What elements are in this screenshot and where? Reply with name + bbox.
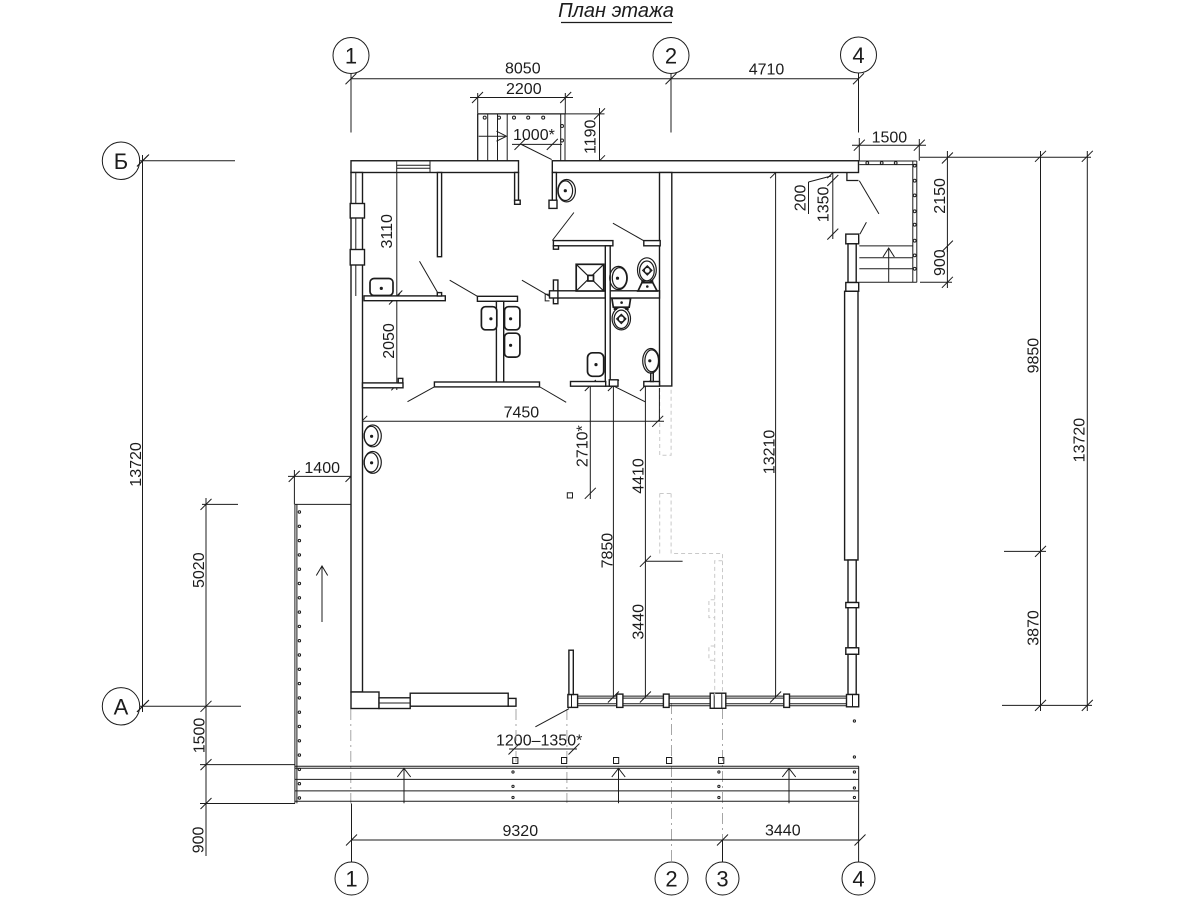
- svg-text:1190: 1190: [583, 119, 600, 154]
- svg-text:1200–1350*: 1200–1350*: [496, 733, 582, 750]
- svg-text:А: А: [114, 694, 129, 719]
- svg-text:900: 900: [191, 827, 208, 854]
- svg-text:4410: 4410: [631, 458, 648, 494]
- svg-text:13210: 13210: [762, 430, 779, 475]
- svg-text:7850: 7850: [600, 533, 617, 569]
- svg-text:4: 4: [852, 867, 864, 892]
- svg-text:4710: 4710: [749, 62, 785, 79]
- svg-text:2: 2: [665, 867, 677, 892]
- svg-text:1350: 1350: [816, 187, 833, 223]
- svg-text:7450: 7450: [504, 405, 540, 422]
- svg-text:13720: 13720: [128, 442, 145, 487]
- svg-text:8050: 8050: [505, 61, 541, 78]
- svg-text:1400: 1400: [304, 460, 340, 477]
- svg-text:2200: 2200: [506, 81, 542, 98]
- svg-text:Б: Б: [114, 149, 128, 174]
- svg-text:1500: 1500: [872, 129, 908, 146]
- svg-text:План этажа: План этажа: [558, 0, 674, 22]
- svg-text:3110: 3110: [379, 214, 396, 249]
- svg-text:5020: 5020: [191, 552, 208, 588]
- svg-text:3: 3: [716, 867, 728, 892]
- svg-text:1000*: 1000*: [513, 127, 555, 144]
- svg-text:13720: 13720: [1072, 418, 1089, 463]
- svg-text:9320: 9320: [503, 823, 539, 840]
- svg-text:4: 4: [852, 43, 864, 68]
- svg-text:1500: 1500: [192, 718, 209, 754]
- svg-text:2: 2: [665, 44, 677, 69]
- svg-text:200: 200: [793, 185, 810, 212]
- svg-text:9850: 9850: [1026, 338, 1043, 374]
- svg-text:900: 900: [932, 249, 949, 276]
- svg-text:2150: 2150: [932, 178, 949, 214]
- svg-text:2050: 2050: [381, 323, 398, 359]
- svg-text:1: 1: [345, 867, 357, 892]
- svg-text:3870: 3870: [1026, 610, 1043, 646]
- svg-text:3440: 3440: [631, 604, 648, 640]
- svg-text:2710*: 2710*: [575, 425, 592, 467]
- svg-text:1: 1: [345, 44, 357, 69]
- svg-text:3440: 3440: [765, 823, 801, 840]
